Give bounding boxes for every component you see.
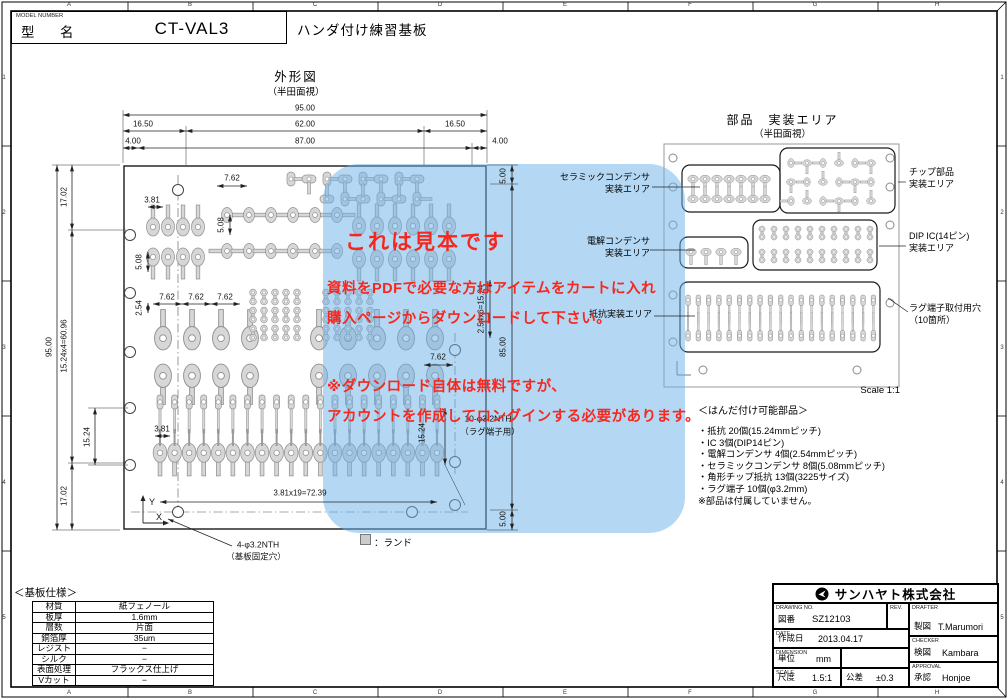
drawing-sheet: A B C D E F G H A B C D E F G H 1 2 3 4 … bbox=[0, 0, 1008, 700]
dip-area-label: DIP IC(14ピン) 実装エリア bbox=[909, 231, 969, 254]
dim-label: 87.00 bbox=[295, 137, 315, 146]
parts-list-item: ・セラミックコンデンサ 8個(5.08mmピッチ) bbox=[698, 461, 885, 473]
approval-value: Honjoe bbox=[942, 673, 971, 683]
dim-label: 7.62 bbox=[159, 293, 175, 302]
drawing-no-cell: DRAWING NO. 図番 SZ12103 bbox=[773, 603, 887, 629]
spec-key: シルク bbox=[33, 654, 76, 665]
checker-cell: CHECKER 検図 Kambara bbox=[909, 636, 998, 662]
drafter-cell: DRAFTER 製図 T.Marumori bbox=[909, 603, 998, 636]
spec-value: − bbox=[76, 654, 214, 665]
dim-label: 4.00 bbox=[492, 137, 508, 146]
spec-value: 35um bbox=[76, 633, 214, 644]
dim-label: 5.08 bbox=[135, 254, 144, 270]
spec-row: レジスト− bbox=[33, 644, 214, 655]
spec-key: Vカット bbox=[33, 675, 76, 686]
tolerance-value: ±0.3 bbox=[876, 673, 893, 683]
dim-label: 95.00 bbox=[45, 337, 54, 357]
dim-label: 85.00 bbox=[499, 337, 508, 357]
approval-cell: APPROVAL 承認 Honjoe bbox=[909, 662, 998, 687]
dim-label: 95.00 bbox=[295, 104, 315, 113]
drawing-no-value: SZ12103 bbox=[812, 614, 851, 625]
watermark-line: アカウントを作成してロングインする必要があります。 bbox=[327, 405, 700, 426]
spec-row: Vカット− bbox=[33, 675, 214, 686]
company-header: サンハヤト株式会社 bbox=[773, 584, 998, 603]
dip-area-label-line2: 実装エリア bbox=[909, 243, 969, 255]
parts-list-item: ・IC 3個(DIP14ピン) bbox=[698, 438, 885, 450]
unit-cell: DIMENSION 単位 mm bbox=[773, 648, 841, 668]
dim-label: 15.24x4=60.96 bbox=[60, 319, 69, 372]
spec-row: 銅箔厚35um bbox=[33, 633, 214, 644]
spec-key: 銅箔厚 bbox=[33, 633, 76, 644]
dim-label: 2.54 bbox=[135, 300, 144, 316]
chip-area-label-line2: 実装エリア bbox=[909, 179, 954, 191]
electrolytic-area-label-line1: 電解コンデンサ bbox=[556, 236, 650, 248]
spec-key: 材質 bbox=[33, 602, 76, 613]
product-name: ハンダ付け練習基板 bbox=[297, 19, 428, 39]
dim-label: 17.02 bbox=[60, 187, 69, 207]
lug-hole-label: ラグ端子取付用穴 （10箇所） bbox=[909, 303, 981, 326]
company-logo-icon bbox=[815, 587, 829, 601]
rev-cell: REV. bbox=[887, 603, 909, 629]
model-name-label: 型 名 bbox=[21, 21, 80, 41]
ceramic-area-label: セラミックコンデンサ 実装エリア bbox=[540, 172, 650, 195]
parts-list-title: ＜はんだ付け可能部品＞ bbox=[698, 402, 885, 417]
svg-text:X: X bbox=[156, 512, 162, 522]
model-name-value: CT-VAL3 bbox=[107, 19, 277, 39]
parts-list-item: ・角形チップ抵抗 13個(3225サイズ) bbox=[698, 472, 885, 484]
watermark-line: ※ダウンロード自体は無料ですが、 bbox=[327, 375, 566, 396]
dim-label: 17.02 bbox=[60, 486, 69, 506]
dim-label: 7.62 bbox=[224, 174, 240, 183]
approval-label: APPROVAL bbox=[912, 664, 941, 670]
dim-label: 3.81x19=72.39 bbox=[273, 489, 326, 498]
company-name: サンハヤト株式会社 bbox=[835, 584, 957, 603]
outline-board-drawing: YX bbox=[123, 165, 487, 530]
rev-label: REV. bbox=[890, 605, 902, 611]
lug-hole-note-sub: （ラグ端子用） bbox=[460, 428, 520, 437]
dim-label: 7.62 bbox=[188, 293, 204, 302]
mount-area-board-drawing bbox=[663, 143, 900, 388]
unit-value: mm bbox=[816, 654, 831, 664]
tolerance-cell: 公差 ±0.3 bbox=[841, 668, 909, 687]
dim-label: 7.62 bbox=[217, 293, 233, 302]
lug-hole-label-line1: ラグ端子取付用穴 bbox=[909, 303, 981, 315]
dim-label: 16.50 bbox=[445, 120, 465, 129]
chip-area-label: チップ部品 実装エリア bbox=[909, 167, 954, 190]
unit-spare-cell bbox=[841, 648, 909, 668]
scale-note: Scale 1:1 bbox=[825, 385, 900, 397]
drawing-no-jp: 図番 bbox=[778, 613, 795, 625]
ceramic-area-label-line1: セラミックコンデンサ bbox=[540, 172, 650, 184]
electrolytic-area-label-line2: 実装エリア bbox=[556, 248, 650, 260]
watermark-line: 資料をPDFで必要な方はアイテムをカートに入れ bbox=[327, 277, 656, 298]
dip-area-label-line1: DIP IC(14ピン) bbox=[909, 231, 969, 243]
unit-jp: 単位 bbox=[778, 652, 795, 664]
spec-row: シルク− bbox=[33, 654, 214, 665]
spec-row: 層数片面 bbox=[33, 623, 214, 634]
watermark-line: 購入ページからダウンロードして下さい。 bbox=[327, 307, 611, 328]
title-block: サンハヤト株式会社 DRAWING NO. 図番 SZ12103 REV. DA… bbox=[772, 583, 999, 688]
dim-label: 3.81 bbox=[154, 425, 170, 434]
board-spec-title: ＜基板仕様＞ bbox=[14, 585, 77, 600]
dim-label: 16.50 bbox=[133, 120, 153, 129]
parts-list-note: ※部品は付属していません。 bbox=[698, 496, 885, 508]
parts-list-item: ・電解コンデンサ 4個(2.54mmピッチ) bbox=[698, 449, 885, 461]
dim-label: 5.08 bbox=[217, 217, 226, 233]
dim-label: 4.00 bbox=[125, 137, 141, 146]
spec-value: 片面 bbox=[76, 623, 214, 634]
drawing-no-label: DRAWING NO. bbox=[776, 605, 814, 611]
checker-label: CHECKER bbox=[912, 638, 939, 644]
mount-hole-note: 4-φ3.2NTH bbox=[237, 541, 279, 550]
parts-list: ＜はんだ付け可能部品＞ ・抵抗 20個(15.24mmピッチ) ・IC 3個(D… bbox=[698, 402, 885, 507]
dim-label: 5.00 bbox=[499, 511, 508, 527]
scale-value: 1.5:1 bbox=[812, 673, 832, 683]
tolerance-jp: 公差 bbox=[846, 671, 863, 683]
spec-key: レジスト bbox=[33, 644, 76, 655]
spec-value: − bbox=[76, 675, 214, 686]
spec-key: 表面処理 bbox=[33, 665, 76, 676]
watermark-headline: これは見本です bbox=[345, 226, 506, 256]
dim-label: 5.00 bbox=[499, 168, 508, 184]
dim-label: 7.62 bbox=[430, 353, 446, 362]
board-spec-table: 材質紙フェノール 板厚1.6mm 層数片面 銅箔厚35um レジスト− シルク−… bbox=[32, 601, 214, 686]
electrolytic-area-label: 電解コンデンサ 実装エリア bbox=[556, 236, 650, 259]
date-jp: 作成日 bbox=[778, 632, 804, 644]
parts-list-item: ・ラグ端子 10個(φ3.2mm) bbox=[698, 484, 885, 496]
spec-key: 層数 bbox=[33, 623, 76, 634]
parts-list-item: ・抵抗 20個(15.24mmピッチ) bbox=[698, 426, 885, 438]
approval-jp: 承認 bbox=[914, 671, 931, 683]
dim-label: 3.81 bbox=[144, 196, 160, 205]
checker-value: Kambara bbox=[942, 648, 979, 658]
land-legend-swatch bbox=[360, 534, 371, 545]
spec-key: 板厚 bbox=[33, 612, 76, 623]
drafter-value: T.Marumori bbox=[938, 622, 983, 632]
scale-jp: 尺度 bbox=[778, 671, 795, 683]
spec-row: 材質紙フェノール bbox=[33, 602, 214, 613]
land-legend-label: ：ランド bbox=[374, 535, 412, 549]
date-cell: DATE 作成日 2013.04.17 bbox=[773, 629, 909, 648]
mount-hole-note-sub: （基板固定穴） bbox=[226, 553, 286, 562]
model-number-label: MODEL NUMBER bbox=[16, 13, 63, 19]
scale-cell: SCALE 尺度 1.5:1 bbox=[773, 668, 841, 687]
dim-label: 15.24 bbox=[83, 427, 92, 447]
spec-row: 板厚1.6mm bbox=[33, 612, 214, 623]
spec-row: 表面処理フラックス仕上げ bbox=[33, 665, 214, 676]
spec-value: フラックス仕上げ bbox=[76, 665, 214, 676]
ceramic-area-label-line2: 実装エリア bbox=[540, 184, 650, 196]
dim-label: 62.00 bbox=[295, 120, 315, 129]
lug-hole-label-line2: （10箇所） bbox=[909, 315, 981, 327]
chip-area-label-line1: チップ部品 bbox=[909, 167, 954, 179]
checker-jp: 検図 bbox=[914, 646, 931, 658]
drafter-label: DRAFTER bbox=[912, 605, 938, 611]
spec-value: − bbox=[76, 644, 214, 655]
date-value: 2013.04.17 bbox=[818, 634, 863, 644]
drafter-jp: 製図 bbox=[914, 620, 931, 632]
svg-text:Y: Y bbox=[149, 497, 155, 507]
model-title-box: MODEL NUMBER 型 名 CT-VAL3 bbox=[11, 11, 287, 44]
spec-value: 紙フェノール bbox=[76, 602, 214, 613]
spec-value: 1.6mm bbox=[76, 612, 214, 623]
